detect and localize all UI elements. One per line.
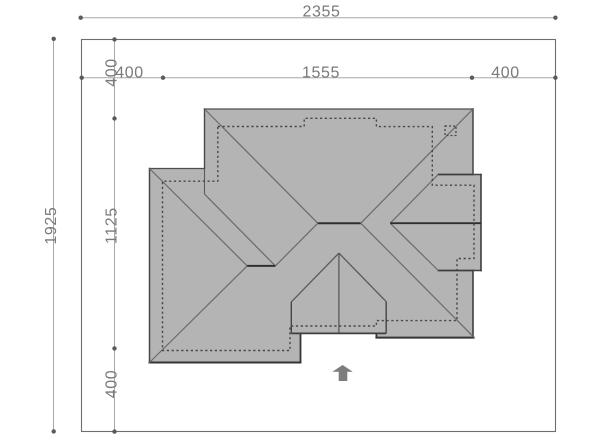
svg-text:400: 400 <box>491 65 520 82</box>
svg-text:400: 400 <box>103 58 120 87</box>
svg-text:1555: 1555 <box>302 65 340 82</box>
svg-text:1925: 1925 <box>43 207 60 245</box>
svg-text:1125: 1125 <box>103 207 120 244</box>
svg-text:2355: 2355 <box>303 4 341 21</box>
svg-text:400: 400 <box>103 370 120 399</box>
